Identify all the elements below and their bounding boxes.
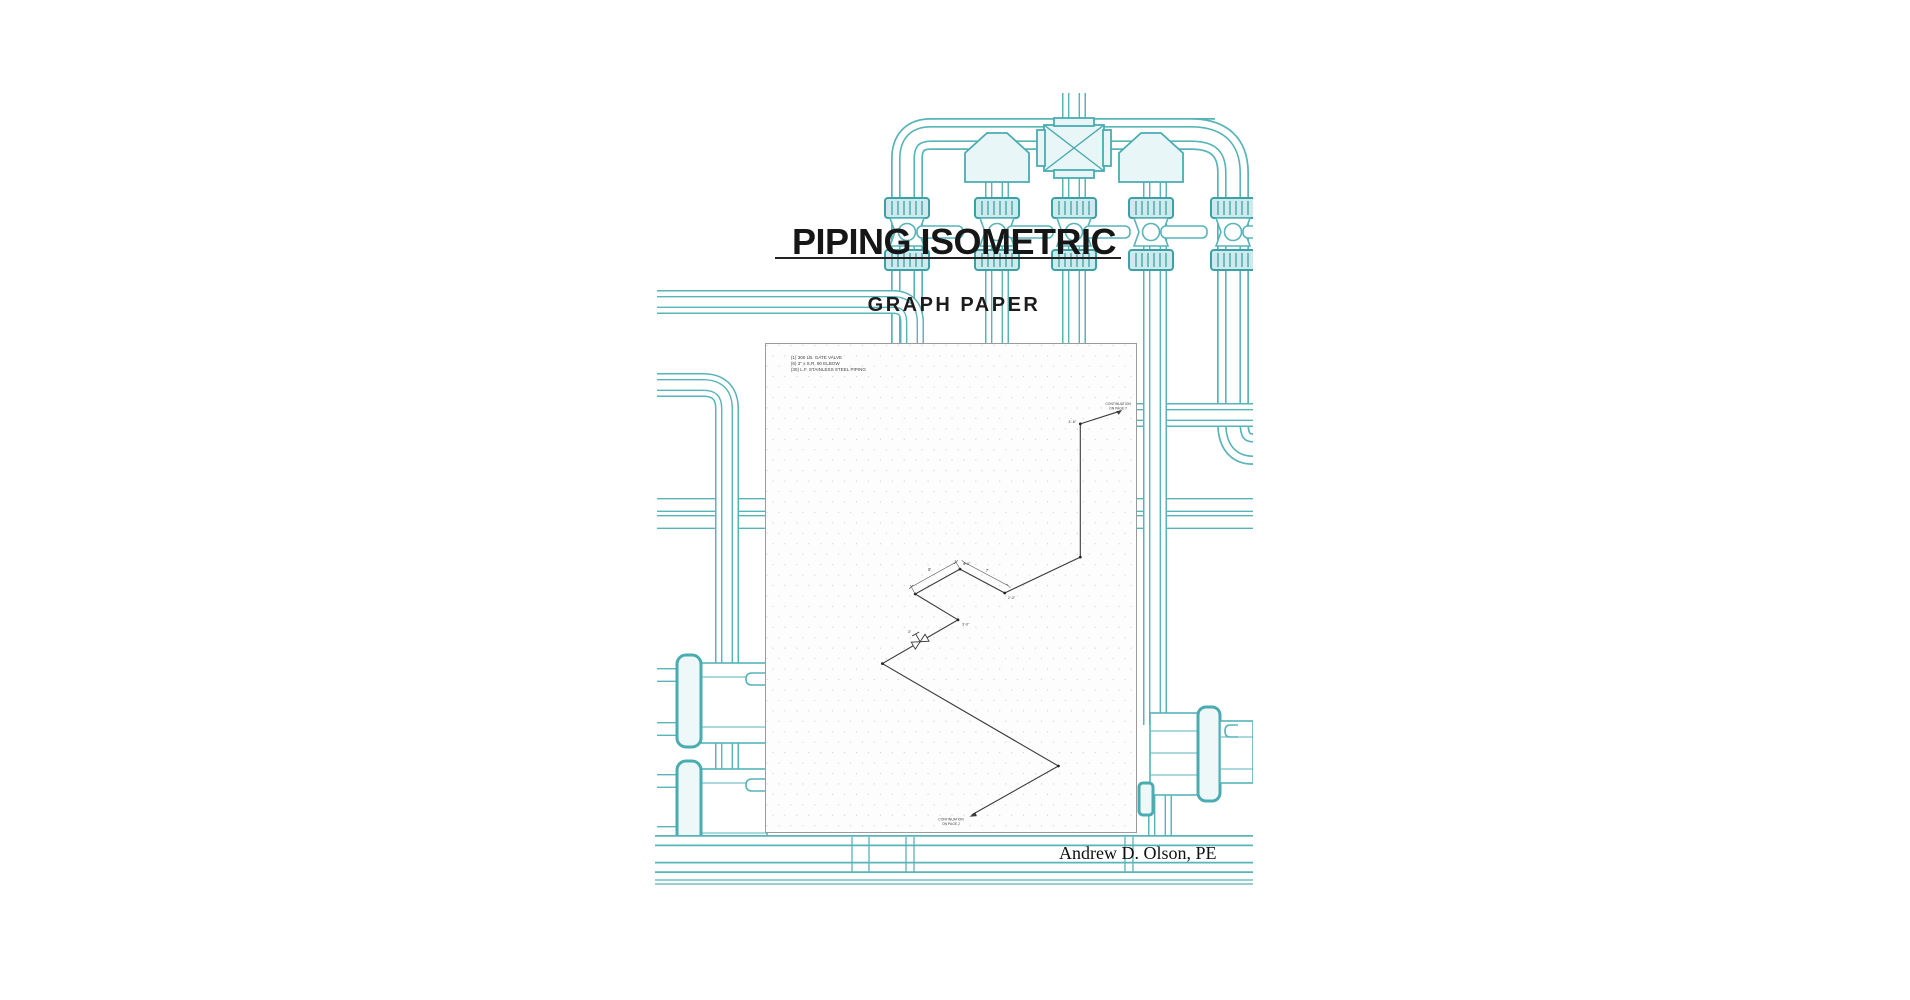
title-underline <box>775 257 1121 259</box>
book-cover: (1) 300 LB. GATE VALVE (6) 3" x S.R. 90 … <box>655 85 1253 915</box>
cover-subtitle: GRAPH PAPER <box>655 294 1253 317</box>
header-right-elbow-pipe <box>1191 134 1253 449</box>
node-label: 2'-0" <box>1008 596 1016 600</box>
bom-line: (1) 300 LB. GATE VALVE <box>791 355 842 360</box>
bom-line: (6) 3" x S.R. 90 ELBOW <box>791 361 840 366</box>
continuation-bottom-label: ON PAGE 2 <box>942 822 960 826</box>
riser-dim-label: 4'-6" <box>1068 419 1076 424</box>
book-cover-product-image: (1) 300 LB. GATE VALVE (6) 3" x S.R. 90 … <box>0 0 1910 1000</box>
isometric-graph-paper-sheet: (1) 300 LB. GATE VALVE (6) 3" x S.R. 90 … <box>765 343 1137 833</box>
continuation-bottom-label: CONTINUATION <box>938 818 964 822</box>
bom-line: (30) L.F. STAINLESS STEEL PIPING <box>791 367 867 372</box>
continuation-top-label: ON PAGE 7 <box>1109 406 1127 410</box>
dim-label: 8' <box>928 567 931 572</box>
cross-fitting <box>1037 118 1111 178</box>
node-label: 3'-0" <box>962 622 970 626</box>
isometric-drawing: (1) 300 LB. GATE VALVE (6) 3" x S.R. 90 … <box>766 344 1136 832</box>
continuation-top-label: CONTINUATION <box>1105 402 1131 406</box>
node-label: 4'-0" <box>963 562 971 566</box>
dim-label: 7' <box>986 568 989 573</box>
left-horizontal-pipe <box>657 505 767 522</box>
author-name: Andrew D. Olson, PE <box>1059 843 1217 864</box>
left-flanged-pipe-upper <box>657 655 767 747</box>
iso-grid <box>766 344 1136 831</box>
